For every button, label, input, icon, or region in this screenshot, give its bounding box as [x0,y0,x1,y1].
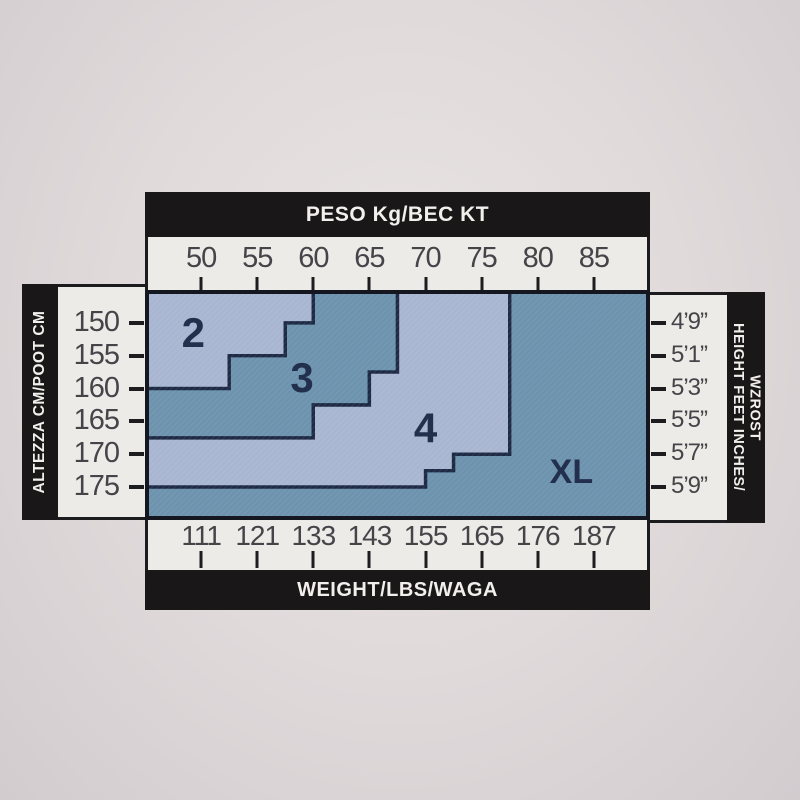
lbs-tick-label: 111 [181,520,221,552]
right-axis-title: HEIGHT FEET INCHES/ WZROST [729,323,762,491]
lbs-tick-mark [424,551,427,568]
kg-tick-mark [480,277,483,290]
kg-tick-mark [312,277,315,290]
kg-tick-label: 80 [523,242,553,275]
top-axis-title: PESO Kg/BEC KT [306,203,489,227]
left-axis-title-bar: ALTEZZA CM/POOT CM [22,284,58,520]
lbs-tick-mark [480,551,483,568]
feet-tick-label: 5’5” [671,406,707,434]
kg-tick-label: 70 [410,242,440,275]
bottom-axis-title: WEIGHT/LBS/WAGA [297,579,498,602]
cm-tick-mark [129,321,144,325]
cm-tick-mark [129,419,144,423]
kg-tick-mark [256,277,259,290]
feet-tick-mark [651,485,666,489]
feet-tick-mark [651,387,666,391]
size-regions-plot: 234XL [145,290,650,520]
left-axis-title: ALTEZZA CM/POOT CM [31,311,49,494]
feet-tick-label: 5’9” [671,472,707,500]
cm-tick-mark [129,387,144,391]
lbs-tick-label: 133 [291,520,335,552]
feet-tick-mark [651,321,666,325]
feet-tick-mark [651,419,666,423]
size-chart-photo: PESO Kg/BEC KT 5055606570758085 ALTEZZA … [0,0,800,800]
left-axis-cm-scale: 150155160165170175 [58,284,145,520]
lbs-tick-label: 143 [348,520,392,552]
cm-tick-label: 150 [74,307,119,337]
lbs-tick-mark [592,551,595,568]
size-region-label-4: 4 [414,405,438,452]
cm-tick-mark [129,485,144,489]
bottom-axis-title-bar: WEIGHT/LBS/WAGA [145,570,650,610]
lbs-tick-mark [536,551,539,568]
kg-tick-mark [368,277,371,290]
top-axis-kg-scale: 5055606570758085 [145,237,650,290]
cm-tick-mark [129,452,144,456]
kg-tick-label: 50 [186,242,216,275]
kg-tick-label: 75 [467,242,497,275]
top-axis-title-bar: PESO Kg/BEC KT [145,192,650,237]
size-region-label-2: 2 [182,309,205,356]
kg-tick-label: 55 [242,242,272,275]
kg-tick-label: 60 [298,242,328,275]
right-axis-title-bar: HEIGHT FEET INCHES/ WZROST [727,292,765,523]
feet-tick-mark [651,354,666,358]
size-region-label-XL: XL [550,453,593,491]
kg-tick-mark [592,277,595,290]
lbs-tick-mark [368,551,371,568]
feet-tick-label: 5’3” [671,374,707,402]
kg-tick-mark [200,277,203,290]
lbs-tick-label: 155 [404,520,448,552]
cm-tick-label: 160 [74,373,119,403]
kg-tick-label: 85 [579,242,609,275]
lbs-tick-label: 176 [516,520,560,552]
size-regions-svg: 234XL [145,290,650,520]
cm-tick-label: 165 [74,405,119,435]
lbs-tick-label: 121 [235,520,279,552]
right-axis-feet-scale: 4’9”5’1”5’3”5’5”5’7”5’9” [650,292,727,523]
kg-tick-mark [536,277,539,290]
lbs-tick-mark [256,551,259,568]
size-region-label-3: 3 [290,354,313,401]
lbs-tick-label: 187 [572,520,616,552]
feet-tick-label: 5’1” [671,341,707,369]
bottom-axis-lbs-scale: 111121133143155165176187 [145,520,650,570]
kg-tick-mark [424,277,427,290]
lbs-tick-mark [200,551,203,568]
feet-tick-label: 4’9” [671,308,707,336]
kg-tick-label: 65 [354,242,384,275]
lbs-tick-label: 165 [460,520,504,552]
cm-tick-label: 170 [74,438,119,468]
lbs-tick-mark [312,551,315,568]
cm-tick-label: 175 [74,471,119,501]
feet-tick-label: 5’7” [671,439,707,467]
cm-tick-mark [129,354,144,358]
cm-tick-label: 155 [74,340,119,370]
feet-tick-mark [651,452,666,456]
